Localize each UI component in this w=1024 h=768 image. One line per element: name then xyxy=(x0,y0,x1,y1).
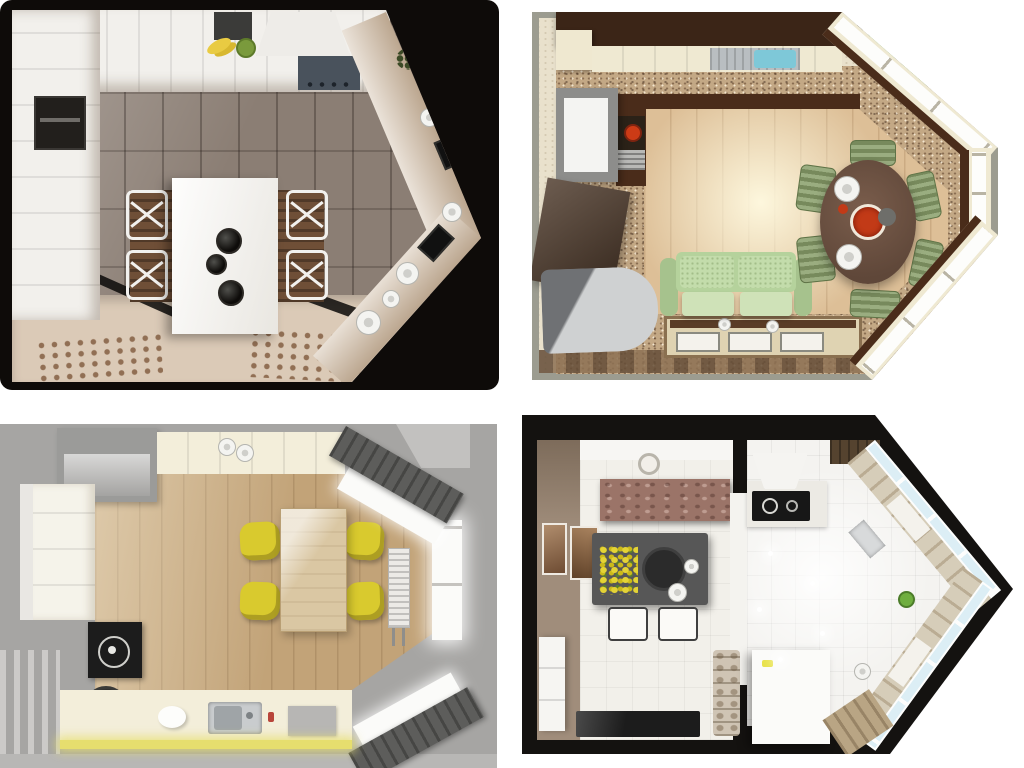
yellow-chair-1 xyxy=(239,521,281,561)
ceiling-spotlight xyxy=(768,551,773,556)
grill-tray xyxy=(618,150,645,170)
chair-top-left xyxy=(126,190,168,240)
rug-glass-2 xyxy=(766,320,779,333)
candle-3 xyxy=(218,280,244,306)
island-item-yellow xyxy=(762,660,773,667)
gray-ottoman xyxy=(541,266,660,354)
striped-panel xyxy=(0,650,60,754)
burner-2 xyxy=(786,500,798,512)
carpet-ornament-left xyxy=(35,332,164,385)
room-shape xyxy=(0,0,499,390)
ceiling-spotlight xyxy=(757,607,762,612)
rug-tile-2 xyxy=(728,332,772,352)
sofa-cushion-left xyxy=(680,256,734,288)
radiator-leg-1 xyxy=(392,628,395,646)
radiator-leg-2 xyxy=(402,628,405,646)
dining-table xyxy=(280,508,347,632)
render-top-left-kitchen xyxy=(0,0,499,390)
yellow-chair-4 xyxy=(345,581,384,620)
arrow-outline xyxy=(512,413,1024,768)
chair-bottom-left xyxy=(126,250,168,300)
cooktop-dot xyxy=(108,646,116,654)
chair-1 xyxy=(608,607,648,641)
cooktop-knobs xyxy=(304,82,354,87)
cooktop-burner xyxy=(624,124,642,142)
cup-2 xyxy=(236,444,254,462)
floor-strip-bottom xyxy=(0,754,497,768)
sideboard xyxy=(539,637,565,731)
table-plate-top xyxy=(834,176,860,202)
stone-pillar xyxy=(713,650,740,736)
range-hood xyxy=(256,12,350,56)
ceiling-spotlight xyxy=(820,631,825,636)
rug-brown-band xyxy=(670,320,856,328)
fridge-door xyxy=(564,98,608,172)
picture-frame-1 xyxy=(542,523,567,575)
chair-2 xyxy=(658,607,698,641)
built-in-oven xyxy=(34,96,86,150)
sink-basin xyxy=(754,50,796,68)
counter-dark-horizontal xyxy=(622,94,860,109)
counter-cup-3 xyxy=(382,290,400,308)
counter-cup-1 xyxy=(420,108,439,127)
gray-kettle xyxy=(878,208,896,226)
brown-cabinet xyxy=(600,479,730,521)
white-teapot xyxy=(668,583,687,602)
room-shape xyxy=(514,0,1024,392)
render-bottom-left-kitchen xyxy=(0,424,497,768)
small-red-item xyxy=(268,712,274,722)
counter-plant xyxy=(396,48,422,70)
ceiling-spotlight xyxy=(810,581,815,586)
window-sill-dark-right xyxy=(960,150,969,234)
plant-pot xyxy=(898,591,915,608)
yellow-chair-2 xyxy=(239,581,280,620)
counter-pitcher xyxy=(356,310,381,335)
cabinets-left xyxy=(33,484,95,620)
collage-canvas: { "page": { "title": "Collage of four to… xyxy=(0,0,1024,768)
burner-1 xyxy=(762,498,778,514)
yellow-flowers xyxy=(598,545,638,595)
candle-2 xyxy=(206,254,227,275)
flower-vase xyxy=(854,663,871,680)
sink-faucet xyxy=(246,712,253,719)
white-cup xyxy=(684,559,699,574)
ceiling-spotlight xyxy=(778,657,783,662)
sofa-seat-right xyxy=(740,292,792,316)
wall-white-strip xyxy=(20,484,33,620)
sofa-seat-left xyxy=(682,292,734,316)
rug-glass-1 xyxy=(718,318,731,331)
rug-tile-3 xyxy=(780,332,824,352)
fruit-plate xyxy=(236,38,256,58)
towel xyxy=(158,706,186,728)
dining-table xyxy=(172,178,278,334)
sofa-cushion-right xyxy=(738,256,792,288)
chair-bottom-right xyxy=(286,250,328,300)
counter-cup-2 xyxy=(442,202,462,222)
candle-1 xyxy=(216,228,242,254)
upper-cabinets xyxy=(556,12,842,46)
red-cup xyxy=(838,204,848,214)
cooktop xyxy=(752,491,810,521)
radiator xyxy=(388,548,410,628)
yellow-chair-3 xyxy=(345,521,385,561)
wall-clock xyxy=(638,453,660,475)
cup-1 xyxy=(218,438,236,456)
sink-basin xyxy=(214,706,242,730)
appliance-box xyxy=(288,706,336,736)
oven-handle xyxy=(40,118,80,122)
table-plate-bottom xyxy=(836,244,862,270)
render-bottom-right-studio xyxy=(512,413,1024,768)
cabinets-left xyxy=(12,10,100,320)
dark-tray xyxy=(214,12,252,40)
chair-top-right xyxy=(286,190,328,240)
rug-tile-1 xyxy=(676,332,720,352)
tv xyxy=(576,711,700,737)
under-cabinet-light xyxy=(60,740,352,749)
render-top-right-living-kitchen xyxy=(514,0,1024,392)
corner-cabinet xyxy=(556,30,592,70)
counter-bowl xyxy=(396,262,419,285)
